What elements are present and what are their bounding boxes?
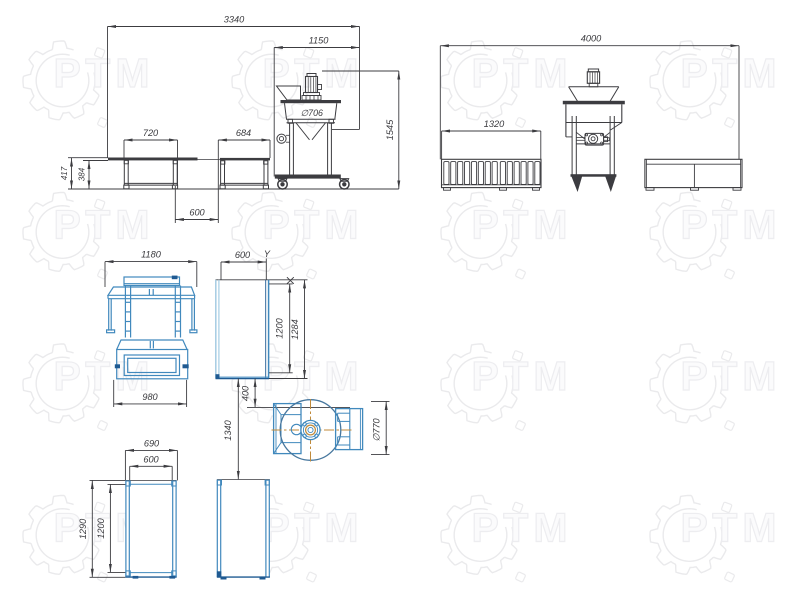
svg-text:1284: 1284 (290, 319, 300, 339)
svg-text:∅706: ∅706 (301, 108, 323, 118)
svg-text:1150: 1150 (309, 36, 330, 46)
svg-text:1290: 1290 (78, 518, 88, 539)
svg-text:600: 600 (189, 208, 205, 218)
svg-text:1320: 1320 (484, 119, 505, 129)
svg-text:3340: 3340 (224, 15, 245, 25)
svg-text:417: 417 (60, 166, 69, 180)
svg-text:690: 690 (144, 438, 160, 448)
svg-text:1180: 1180 (141, 250, 162, 260)
svg-text:400: 400 (240, 385, 250, 401)
svg-text:4000: 4000 (581, 34, 602, 44)
svg-text:1340: 1340 (223, 419, 233, 440)
svg-text:∅770: ∅770 (371, 417, 381, 441)
svg-text:720: 720 (143, 128, 159, 138)
svg-text:684: 684 (236, 128, 251, 138)
svg-text:1200: 1200 (96, 517, 106, 538)
svg-text:384: 384 (77, 167, 86, 181)
svg-text:600: 600 (143, 454, 159, 464)
svg-text:600: 600 (235, 250, 251, 260)
svg-text:980: 980 (142, 392, 158, 402)
svg-text:1545: 1545 (385, 119, 395, 140)
svg-text:Y: Y (264, 249, 271, 259)
svg-text:1200: 1200 (274, 317, 284, 338)
